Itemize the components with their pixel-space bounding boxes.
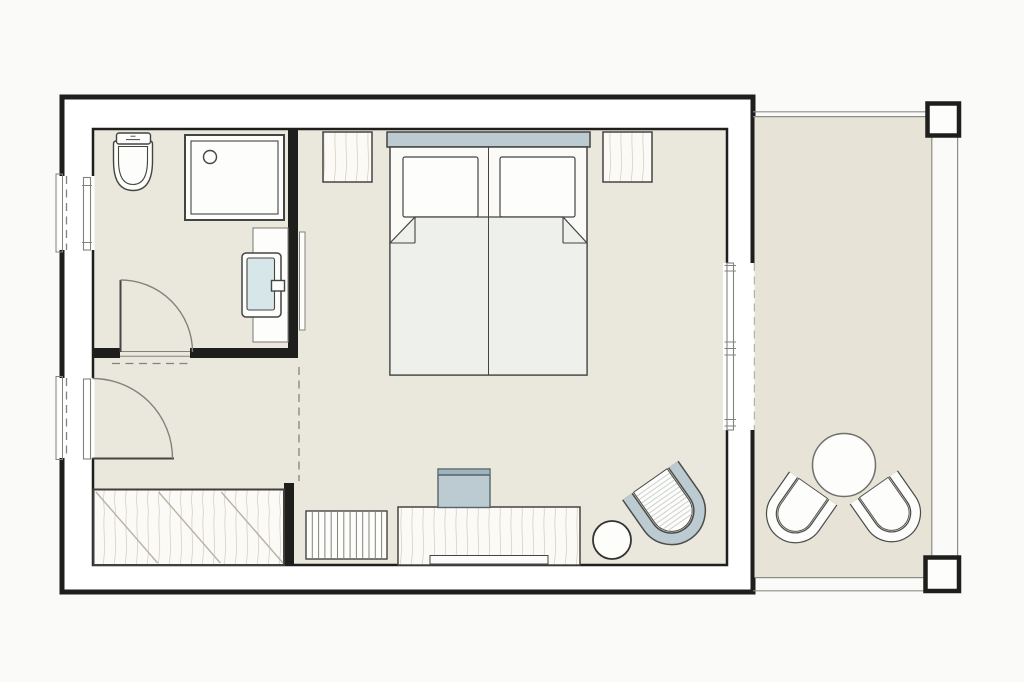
window-glazing <box>84 178 91 251</box>
desk <box>398 507 580 565</box>
headboard <box>387 132 590 147</box>
wall-panel <box>300 232 306 330</box>
double-bed <box>387 132 590 375</box>
pillow-left <box>403 157 478 217</box>
balcony-post-bottom <box>926 558 960 592</box>
sink-basin <box>247 258 275 310</box>
wardrobe <box>94 483 295 566</box>
entrance-door-frame <box>84 379 91 459</box>
stool <box>593 521 631 559</box>
toilet <box>114 133 153 191</box>
pillow-right <box>500 157 575 217</box>
shower-drain <box>204 151 217 164</box>
desk-drawer <box>430 556 548 565</box>
balcony-table <box>813 434 876 497</box>
desk-chair <box>438 469 490 508</box>
balcony-post-top <box>928 104 960 136</box>
nightstand-left <box>323 132 372 182</box>
shower <box>185 135 284 220</box>
sink-tap <box>272 281 285 292</box>
balcony <box>753 104 959 592</box>
floor-plan <box>0 0 1024 682</box>
floor-plan-page <box>0 0 1024 682</box>
radiator <box>306 511 387 559</box>
nightstand-right <box>603 132 652 182</box>
